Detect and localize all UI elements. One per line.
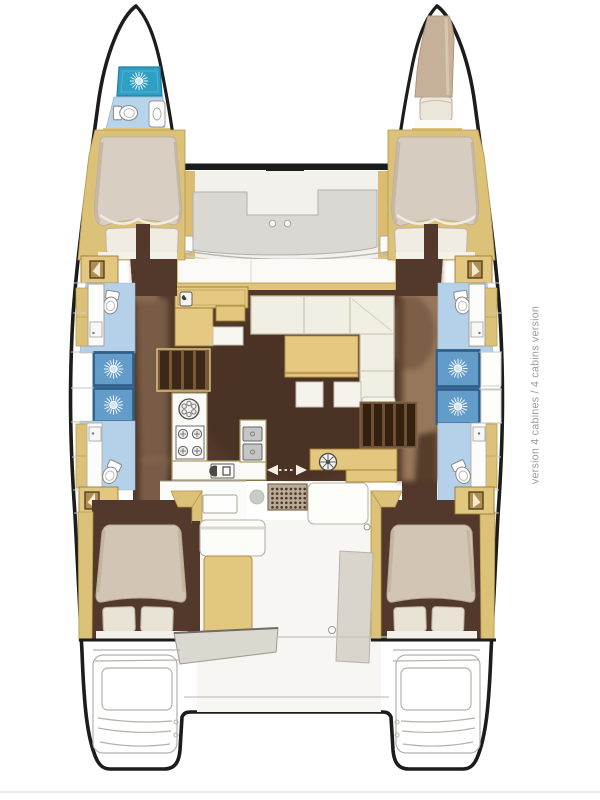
- svg-text:version 4 cabines / 4 cabins v: version 4 cabines / 4 cabins version: [530, 306, 542, 484]
